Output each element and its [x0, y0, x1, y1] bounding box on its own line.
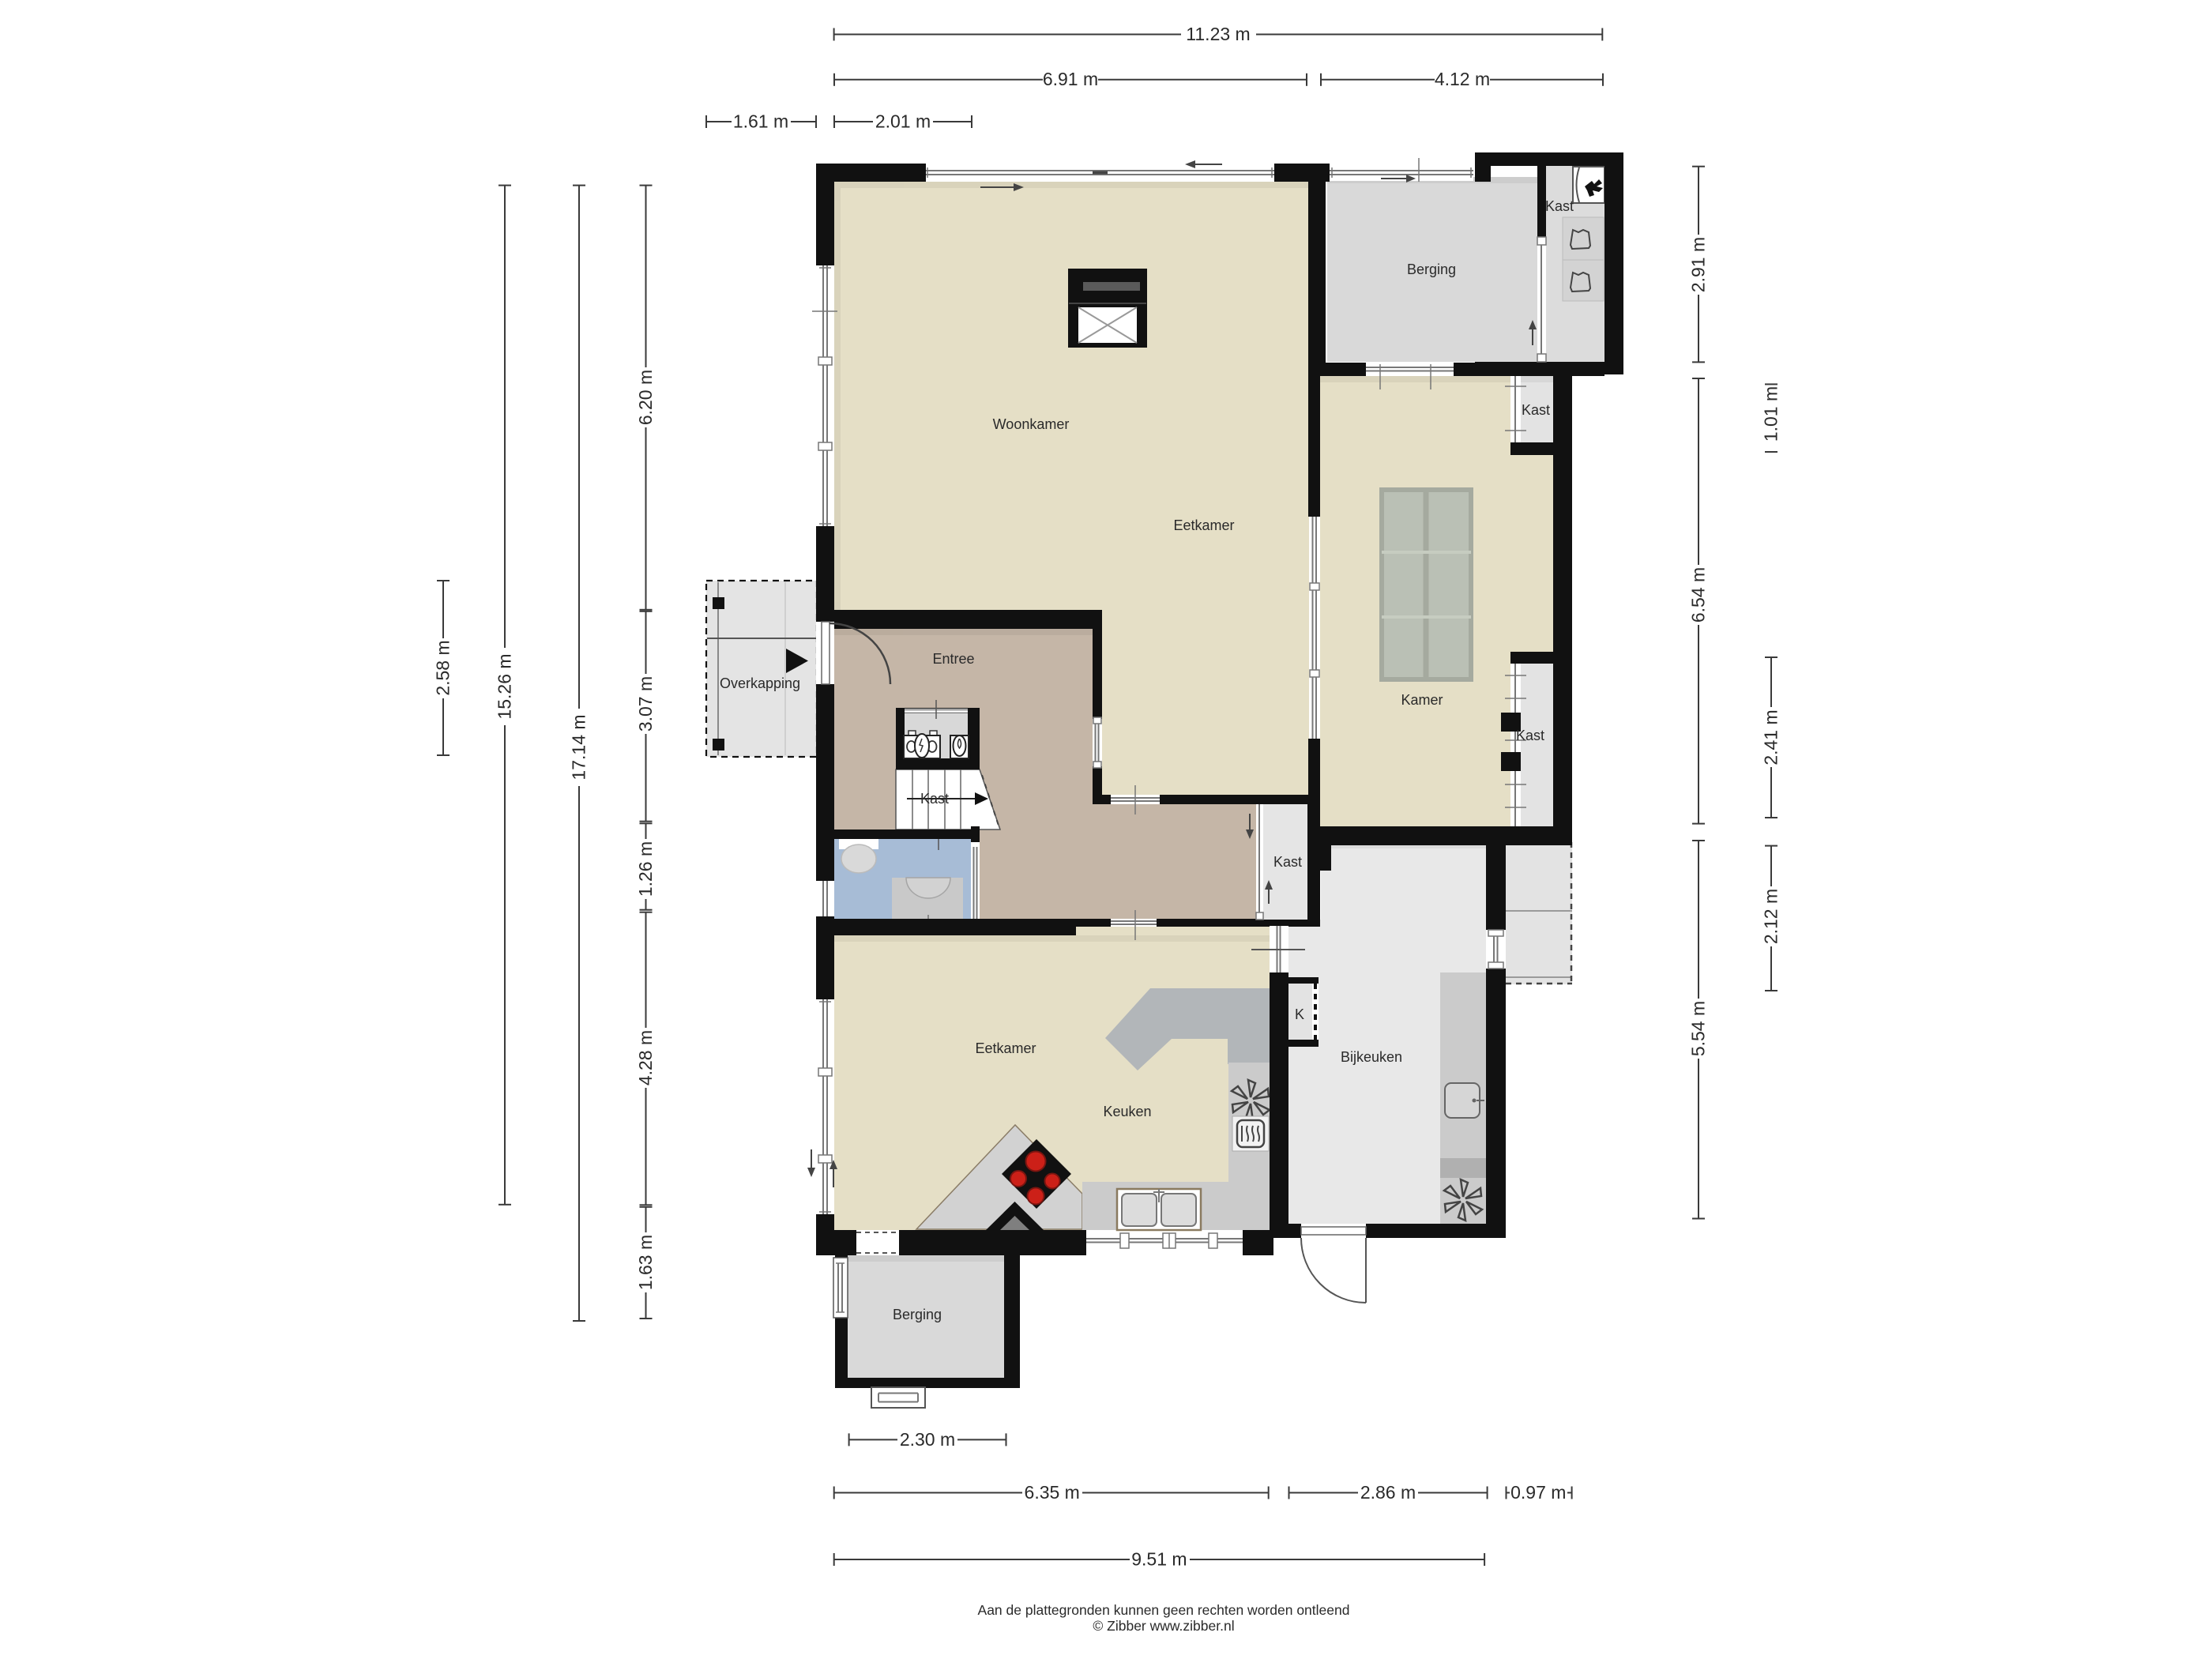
svg-text:6.91 m: 6.91 m — [1043, 69, 1098, 89]
svg-text:K: K — [1295, 1006, 1304, 1022]
svg-text:6.20 m: 6.20 m — [635, 370, 656, 425]
svg-text:Woonkamer: Woonkamer — [993, 416, 1070, 432]
svg-text:2.91 m: 2.91 m — [1688, 237, 1709, 292]
svg-text:1.01 m: 1.01 m — [1761, 386, 1781, 442]
svg-text:2.41 m: 2.41 m — [1761, 709, 1781, 765]
svg-text:3.07 m: 3.07 m — [635, 676, 656, 732]
svg-text:Kast: Kast — [920, 791, 949, 807]
svg-text:2.01 m: 2.01 m — [875, 111, 931, 132]
svg-text:17.14 m: 17.14 m — [569, 714, 589, 780]
svg-text:Kamer: Kamer — [1401, 692, 1443, 708]
svg-text:Eetkamer: Eetkamer — [1173, 517, 1234, 533]
svg-text:6.35 m: 6.35 m — [1025, 1482, 1080, 1503]
svg-text:15.26 m: 15.26 m — [495, 653, 515, 719]
svg-text:Berging: Berging — [893, 1307, 942, 1322]
svg-text:© Zibber www.zibber.nl: © Zibber www.zibber.nl — [1093, 1618, 1234, 1634]
svg-text:Berging: Berging — [1407, 261, 1456, 277]
svg-text:1.26 m: 1.26 m — [635, 841, 656, 897]
svg-text:6.54 m: 6.54 m — [1688, 567, 1709, 623]
svg-text:5.54 m: 5.54 m — [1688, 1001, 1709, 1056]
svg-text:Kast: Kast — [1545, 198, 1574, 214]
svg-text:11.23 m: 11.23 m — [1186, 24, 1250, 44]
svg-text:0.97 m: 0.97 m — [1510, 1482, 1566, 1503]
svg-text:4.28 m: 4.28 m — [635, 1030, 656, 1085]
svg-text:Kast: Kast — [1522, 402, 1550, 418]
svg-text:Bijkeuken: Bijkeuken — [1341, 1049, 1402, 1065]
svg-text:Kast: Kast — [1273, 854, 1302, 870]
svg-text:1.63 m: 1.63 m — [635, 1235, 656, 1290]
svg-text:9.51 m: 9.51 m — [1131, 1549, 1187, 1570]
svg-text:Eetkamer: Eetkamer — [975, 1040, 1036, 1056]
svg-text:Kast: Kast — [1516, 728, 1544, 743]
svg-text:2.58 m: 2.58 m — [433, 640, 453, 695]
svg-text:Keuken: Keuken — [1103, 1104, 1151, 1119]
svg-text:2.12 m: 2.12 m — [1761, 889, 1781, 944]
svg-text:Entree: Entree — [932, 651, 974, 667]
svg-text:2.30 m: 2.30 m — [900, 1429, 955, 1450]
svg-text:1.61 m: 1.61 m — [733, 111, 788, 132]
svg-text:2.86 m: 2.86 m — [1360, 1482, 1416, 1503]
svg-text:Overkapping: Overkapping — [720, 675, 800, 691]
svg-text:Aan de plattegronden kunnen ge: Aan de plattegronden kunnen geen rechten… — [978, 1602, 1350, 1618]
svg-text:4.12 m: 4.12 m — [1435, 69, 1490, 89]
